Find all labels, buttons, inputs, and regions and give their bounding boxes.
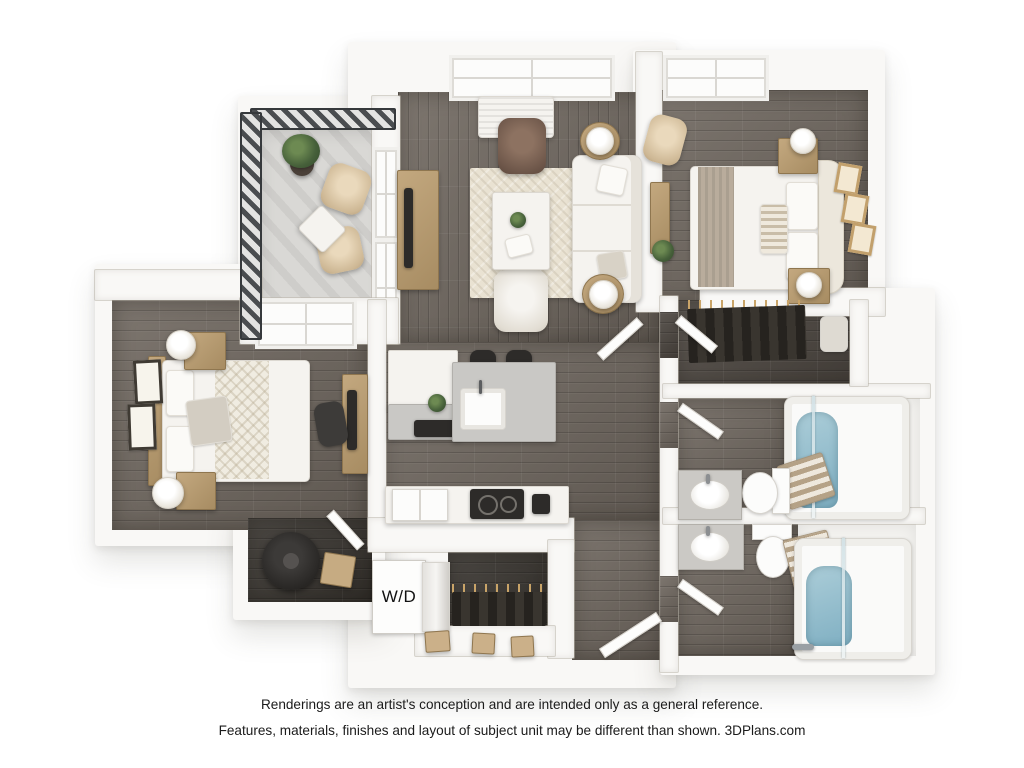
walk-in-closet-shelf	[850, 300, 868, 386]
bathroom-2-faucet-icon	[706, 526, 710, 536]
bed2-lamp-south	[796, 272, 822, 298]
bed2-pillow-striped	[760, 204, 788, 254]
bed2-plant-icon	[652, 240, 674, 262]
wall-bedroom1-east	[368, 300, 386, 546]
bed2-wall-art-2	[841, 192, 870, 226]
tv-icon	[404, 188, 413, 268]
bedroom-2-window	[666, 58, 766, 98]
bed2-wall-art-1	[834, 162, 863, 196]
bathroom-2-sink	[690, 532, 730, 562]
storage-box-3	[510, 635, 534, 657]
walk-in-closet-basket	[820, 316, 848, 352]
disclaimer-line-2: Features, materials, finishes and layout…	[0, 718, 1024, 744]
disclaimer-line-1: Renderings are an artist's conception an…	[0, 692, 1024, 718]
lamp-living-south	[589, 280, 618, 309]
bed1-wall-art-1	[133, 359, 163, 404]
armchair-brown	[498, 118, 546, 174]
coffee-table	[492, 192, 550, 270]
living-room-window	[452, 58, 612, 98]
washer-dryer-appliance	[422, 562, 450, 632]
floor-plan: W/D	[0, 0, 1024, 768]
doorway-bathroom-1	[660, 402, 678, 448]
laundry-closet-clothes	[452, 592, 546, 626]
burner-1	[478, 495, 498, 515]
bathroom-1-faucet-icon	[706, 474, 710, 484]
armchair-white	[494, 270, 548, 332]
small-appliance	[532, 494, 550, 514]
wall-bedroom1-north	[95, 270, 262, 300]
bed2-wall-art-3	[848, 222, 877, 256]
washer-dryer-label: W/D	[382, 587, 417, 607]
bedroom-1-window	[258, 302, 354, 346]
balcony-railing-north	[250, 108, 396, 130]
bed1-wall-art-2	[127, 404, 157, 451]
bed2-lamp-north	[790, 128, 816, 154]
laundry-hamper-lid	[283, 553, 299, 569]
bathtub-2-faucet-icon	[792, 644, 814, 650]
coffee-table-plant-icon	[510, 212, 526, 228]
bathtub-2-water	[806, 566, 852, 646]
kitchen-plant-icon	[428, 394, 446, 412]
kitchen-faucet-icon	[479, 380, 482, 394]
closet-box	[320, 552, 357, 589]
bed1-desk-monitor	[347, 390, 357, 450]
balcony-plant-icon	[282, 134, 320, 168]
storage-box-1	[424, 630, 450, 653]
walk-in-closet-clothes	[687, 305, 807, 363]
washer-dryer-unit: W/D	[372, 560, 426, 634]
balcony-railing-west	[240, 112, 262, 340]
bed2-pillow-1	[786, 182, 818, 230]
bed1-pillow-gray	[185, 395, 233, 446]
bed1-lamp-south	[152, 477, 184, 509]
kitchen-sink	[460, 388, 506, 430]
lamp-living-north	[586, 127, 614, 155]
balcony-door-glass-upper	[375, 150, 397, 238]
bed2-throw-blanket	[698, 167, 734, 287]
sofa-pillow-top	[595, 163, 628, 196]
burner-2	[500, 496, 517, 513]
refrigerator	[392, 489, 448, 521]
bathroom-1-sink	[690, 480, 730, 510]
storage-box-2	[471, 632, 495, 654]
disclaimer: Renderings are an artist's conception an…	[0, 692, 1024, 744]
toilet-1-bowl	[742, 472, 778, 514]
kitchen-upper-cabinet	[388, 350, 458, 410]
bed1-lamp-north	[166, 330, 196, 360]
doorway-bathroom-2	[660, 576, 678, 622]
doorway-walk-in-closet	[660, 312, 678, 358]
bathtub-2-glass-panel	[842, 538, 845, 658]
page: { "floor_plan": { "type": "3d-apartment-…	[0, 0, 1024, 768]
